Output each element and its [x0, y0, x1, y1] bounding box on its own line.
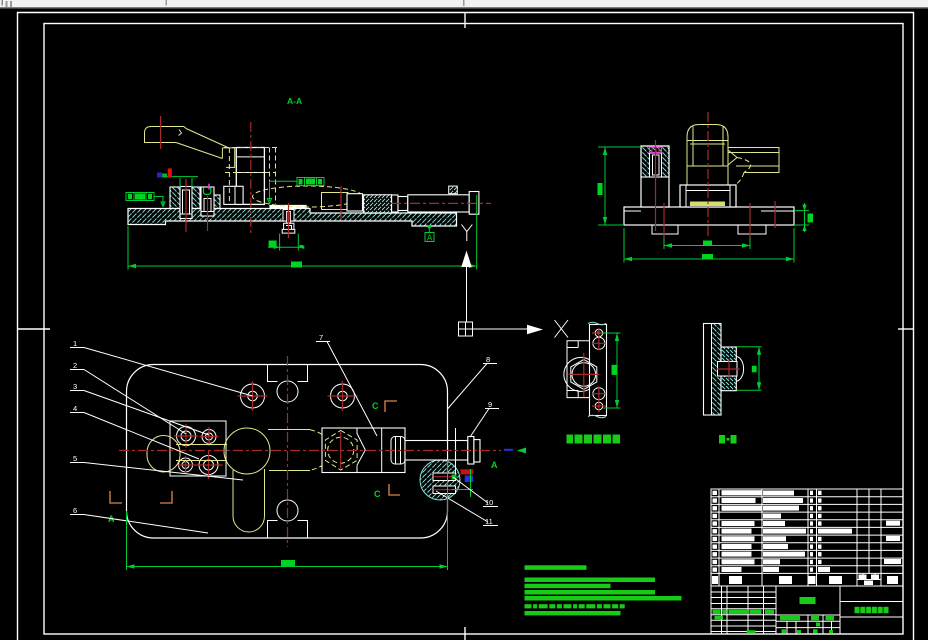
svg-text:A: A: [427, 234, 433, 243]
svg-text:8: 8: [486, 355, 490, 364]
svg-text:11: 11: [485, 517, 493, 526]
svg-text:A-A: A-A: [287, 96, 302, 106]
svg-text:7: 7: [319, 333, 323, 342]
svg-text:5: 5: [73, 454, 77, 463]
svg-text:9: 9: [488, 400, 492, 409]
svg-text:1: 1: [73, 339, 77, 348]
svg-text:6: 6: [73, 506, 77, 515]
svg-text:C: C: [372, 401, 379, 411]
svg-text:3: 3: [73, 382, 77, 391]
svg-text:2: 2: [73, 361, 77, 370]
svg-text:A: A: [491, 460, 498, 470]
svg-text:C: C: [374, 489, 381, 499]
svg-text:10: 10: [485, 498, 493, 507]
svg-text:4: 4: [73, 404, 77, 413]
